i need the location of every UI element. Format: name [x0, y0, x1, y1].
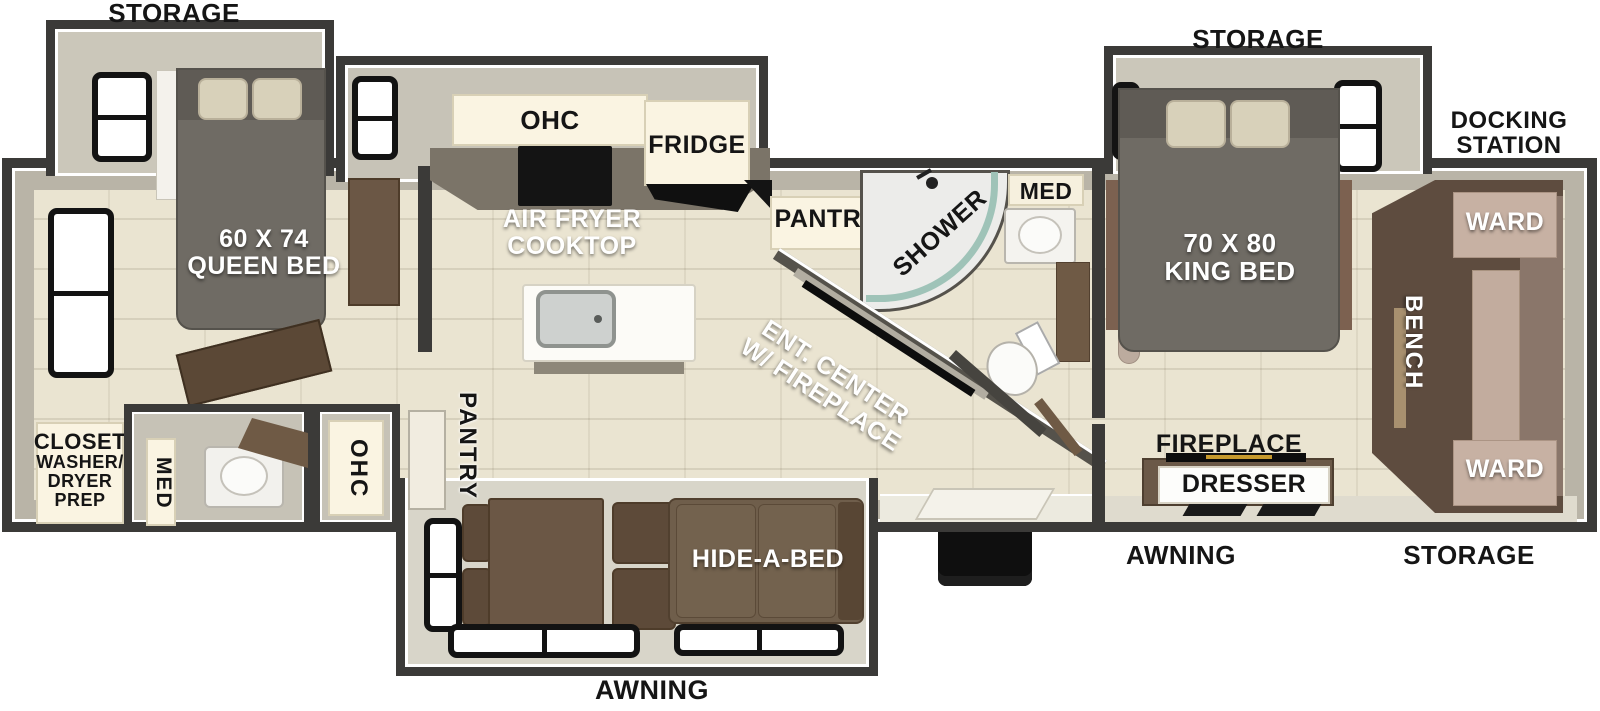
closet-line: WASHER/: [30, 453, 130, 472]
king-bed-head: [1120, 90, 1338, 138]
king-bed-label: 70 X 80 KING BED: [1145, 230, 1315, 285]
entry-step: [938, 532, 1032, 586]
ward-top-label: WARD: [1453, 209, 1557, 236]
queen-bed-line: QUEEN BED: [182, 253, 346, 280]
queen-bed-line: 60 X 74: [182, 226, 346, 253]
queen-bed-label: 60 X 74 QUEEN BED: [182, 226, 346, 279]
island-sink: [536, 290, 616, 348]
cooktop-line: COOKTOP: [492, 233, 652, 260]
pantry-door: [408, 410, 446, 510]
storage-rear-bottom-label: STORAGE: [1384, 542, 1554, 570]
cooktop: [518, 146, 612, 206]
bath-med-label: MED: [1008, 179, 1084, 203]
pillow: [1166, 100, 1226, 148]
front-med-cabinet: MED: [146, 438, 176, 526]
cooktop-label: AIR FRYER COOKTOP: [492, 206, 652, 259]
floorplan-stage: CLOSET WASHER/ DRYER PREP MED OHC PANTRY…: [0, 0, 1600, 711]
front-bath-basin: [220, 456, 268, 496]
partition-wall-rear: [1092, 166, 1105, 418]
closet-line: DRYER: [30, 472, 130, 491]
entry-mat: [915, 488, 1055, 520]
awning-rear-label: AWNING: [1096, 542, 1266, 570]
shower-head-icon: [926, 177, 938, 189]
pillow: [252, 78, 302, 120]
dinette-table: [488, 498, 604, 636]
closet-line: PREP: [30, 491, 130, 510]
sink-drain: [594, 315, 602, 323]
front-ohc-label: OHC: [341, 428, 371, 510]
ward-bottom-label: WARD: [1453, 456, 1557, 483]
window: [674, 624, 844, 656]
pillow: [198, 78, 248, 120]
storage-front-label: STORAGE: [99, 0, 249, 28]
king-bed-line: 70 X 80: [1145, 230, 1315, 258]
awning-main-label: AWNING: [557, 676, 747, 705]
bath-basin: [1018, 216, 1062, 254]
closet-line: CLOSET: [30, 430, 130, 453]
king-bed-line: KING BED: [1145, 258, 1315, 286]
dinette-chair: [612, 568, 676, 630]
dresser-label: DRESSER: [1158, 471, 1330, 498]
partition-wall-rear-lower: [1092, 424, 1105, 532]
partition-wall-front: [418, 166, 432, 352]
docking-station-label: DOCKING STATION: [1424, 108, 1594, 159]
bed-rail: [1340, 180, 1352, 330]
window: [48, 208, 114, 378]
bench-label: BENCH: [1398, 288, 1426, 398]
ward-center-panel: [1472, 270, 1520, 444]
dresser-leg: [1183, 504, 1248, 516]
pillow: [1230, 100, 1290, 148]
closet-label: CLOSET WASHER/ DRYER PREP: [30, 430, 130, 511]
docking-station-line: STATION: [1424, 133, 1594, 158]
bed-rail: [1106, 180, 1118, 330]
fridge-label: FRIDGE: [640, 132, 754, 159]
window: [352, 76, 398, 160]
dresser-leg: [1257, 504, 1322, 516]
dinette-chair: [612, 502, 676, 564]
front-wardrobe: [348, 178, 400, 306]
kitchen-ohc-label: OHC: [452, 107, 648, 135]
window: [424, 518, 462, 632]
bedside-cabinet: [156, 70, 178, 200]
fireplace-label: FIREPLACE: [1143, 431, 1315, 458]
hide-a-bed-label: HIDE-A-BED: [673, 546, 863, 573]
window: [448, 624, 640, 658]
cooktop-line: AIR FRYER: [492, 206, 652, 233]
docking-station-line: DOCKING: [1424, 108, 1594, 133]
window: [92, 72, 152, 162]
window: [1334, 80, 1382, 172]
storage-rear-top-label: STORAGE: [1183, 26, 1333, 54]
pantry-tall-label: PANTRY: [448, 384, 480, 508]
